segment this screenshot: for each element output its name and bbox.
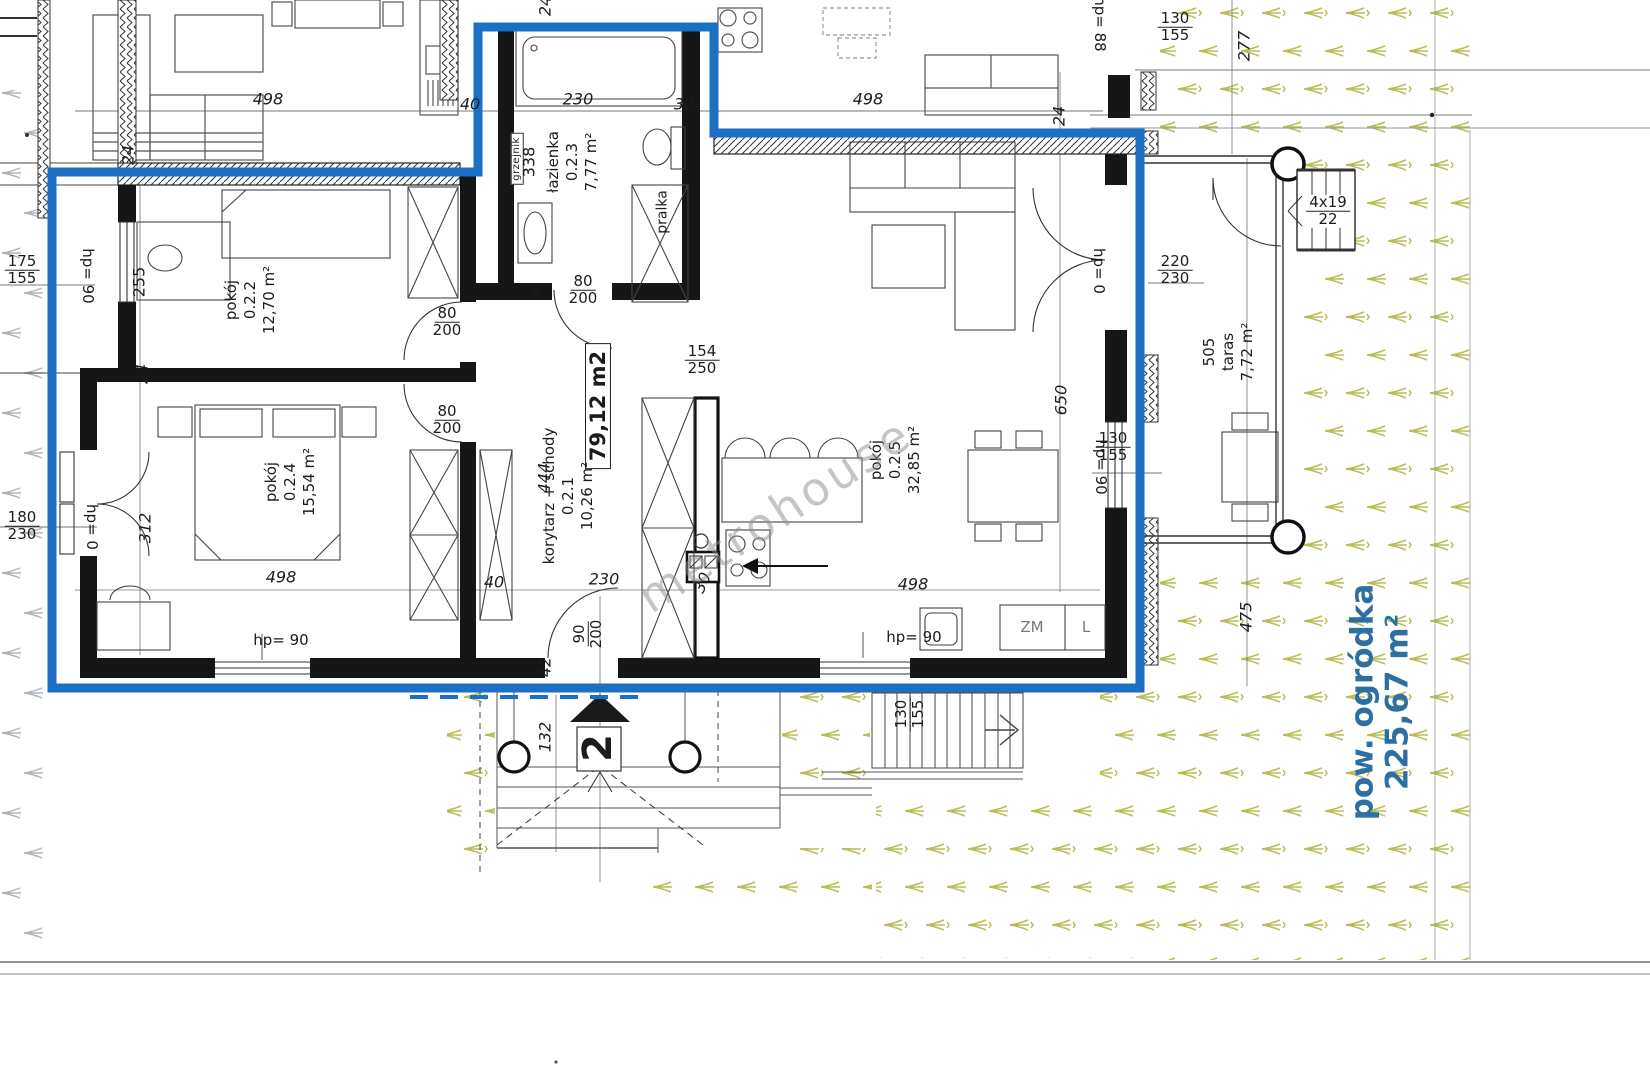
pralka-washer-label: pralka [656, 190, 671, 234]
door-80-200-r022: 80 200 [430, 306, 465, 339]
unit-number: 2 [577, 734, 619, 762]
plan-drawing [0, 0, 1650, 1080]
hp-0-balcony-door: hp= 0 [1090, 248, 1106, 294]
porch-floor [495, 690, 782, 855]
room-label-0-2-3: łazienka 0.2.3 7,77 m² [544, 131, 600, 193]
room-label-0-2-4: pokój 0.2.4 15,54 m² [262, 448, 318, 516]
garden-area-label: pow. ogródka 225,67 m² [1345, 584, 1414, 821]
dim-8: 8 [530, 288, 545, 297]
room-label-0-2-2: pokój 0.2.2 12,70 m² [222, 266, 278, 334]
l-meter-label: L [1082, 620, 1090, 636]
dim-180-230: 180 230 [5, 510, 40, 543]
zm-meter-label: ZM [1020, 620, 1043, 636]
dim-230-corridor: 230 [589, 572, 620, 589]
opening-154-250: 154 250 [685, 344, 720, 377]
neighbor-wall-insulation [1141, 72, 1156, 110]
door-220-230: 220 230 [1158, 254, 1193, 287]
dim-475: 475 [1239, 602, 1256, 633]
room-label-taras: 505 taras 7,72 m² [1200, 323, 1256, 382]
door-80-200-r024: 80 200 [430, 404, 465, 437]
dim-132: 132 [538, 722, 555, 753]
dim-24-divider: 24 [135, 364, 152, 384]
hp-90-room024-window: hp= 90 [253, 633, 308, 649]
dim-42: 42 [538, 657, 555, 677]
dim-277: 277 [1237, 31, 1254, 62]
dim-24-left: 24 [121, 145, 138, 165]
dim-498-top-left: 498 [253, 92, 284, 109]
hp-0-room024: hp= 0 [83, 504, 99, 550]
stairs-130-155: 130 155 [894, 697, 927, 732]
neighbor-wall-pier [1108, 75, 1130, 118]
dim-40-top: 40 [460, 97, 480, 114]
dim-175-155: 175 155 [5, 254, 40, 287]
window-130-155-top: 130 155 [1158, 11, 1193, 44]
hp-90-room025-window: hp= 90 [886, 630, 941, 646]
page-rule-lines [0, 962, 1650, 974]
stairs-4x19-22: 4x19 22 [1306, 195, 1350, 228]
dim-498-room025: 498 [898, 577, 929, 594]
room-label-0-2-1: korytarz + schody 0.2.1 10,26 m² [540, 428, 596, 565]
dim-24-right: 24 [1052, 106, 1069, 126]
dim-444: 444 [537, 463, 554, 494]
dim-338: 338 [522, 147, 539, 178]
dim-312: 312 [138, 513, 155, 544]
hp-88-top: hp= 88 [1091, 0, 1107, 52]
dim-650: 650 [1054, 385, 1071, 416]
dim-255: 255 [132, 267, 149, 298]
hp-90-room022: hp= 90 [79, 248, 95, 303]
dim-230-bath: 230 [563, 92, 594, 109]
door-90-200-entrance: 90 200 [572, 617, 605, 652]
window-130-155-right: 130 155 [1096, 431, 1131, 464]
dim-498-top-right: 498 [853, 92, 884, 109]
dim-40-corridor: 40 [484, 575, 504, 592]
dim-498-room024: 498 [266, 570, 297, 587]
dim-24-bath-top: 24 [538, 0, 555, 16]
dim-30-top: 30 [674, 97, 694, 114]
floor-plan-scan: 498 40 230 30 498 24 24 24 24 175 155 hp… [0, 0, 1650, 1080]
door-80-200-bath: 80 200 [566, 274, 601, 307]
